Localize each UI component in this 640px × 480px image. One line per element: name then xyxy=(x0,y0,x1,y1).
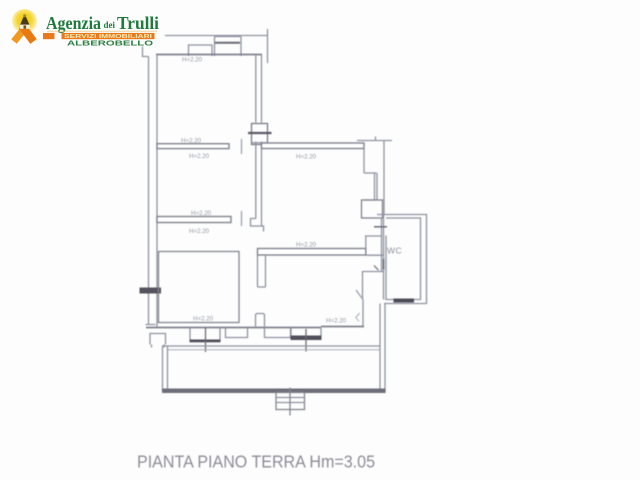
svg-text:H=2.20: H=2.20 xyxy=(181,138,202,145)
svg-text:H=2.20: H=2.20 xyxy=(326,318,347,325)
svg-text:H=2.20: H=2.20 xyxy=(193,316,214,323)
svg-text:dei: dei xyxy=(104,21,116,31)
svg-text:WC: WC xyxy=(387,246,402,256)
svg-text:H=2.20: H=2.20 xyxy=(296,242,317,249)
svg-text:PIANTA PIANO TERRA Hm=3.05: PIANTA PIANO TERRA Hm=3.05 xyxy=(137,452,375,472)
svg-text:H=2.20: H=2.20 xyxy=(189,153,210,160)
svg-text:Trulli: Trulli xyxy=(117,13,159,33)
svg-text:SERVIZI IMMOBILIARI: SERVIZI IMMOBILIARI xyxy=(64,34,153,40)
svg-text:Agenzia: Agenzia xyxy=(46,13,101,33)
svg-text:ALBEROBELLO: ALBEROBELLO xyxy=(67,40,154,47)
svg-text:H=2.20: H=2.20 xyxy=(189,228,210,235)
svg-text:H=2.20: H=2.20 xyxy=(191,210,212,217)
svg-text:H=2.20: H=2.20 xyxy=(182,57,203,64)
svg-text:H=2.20: H=2.20 xyxy=(296,154,317,161)
